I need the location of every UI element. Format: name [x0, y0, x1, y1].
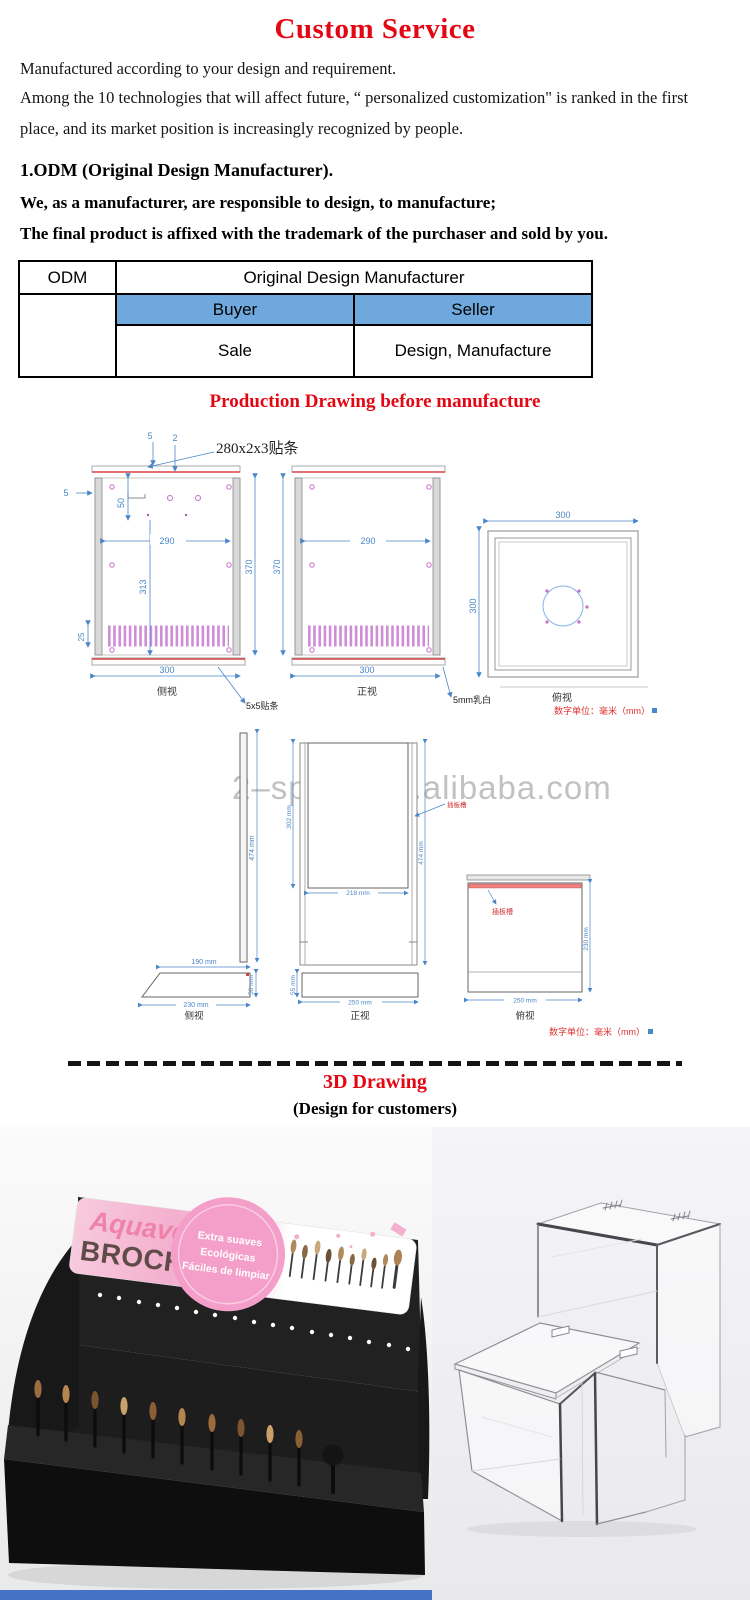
intro-line-1: Manufactured according to your design an…	[20, 59, 396, 79]
dim-474-mid: 474 mm	[418, 841, 425, 864]
dim-300-top-h: 300	[555, 510, 570, 520]
table-cell-buyer: Buyer	[116, 294, 354, 325]
page-title: Custom Service	[0, 13, 750, 46]
side-view-label: 侧视	[157, 685, 177, 698]
slot-note-right: 插板槽	[492, 907, 513, 916]
table-cell-odm: ODM	[19, 261, 116, 294]
note-tape-strip: 280x2x3贴条	[216, 440, 299, 457]
dim-302: 302 mm	[286, 805, 293, 828]
top-view-drawing	[488, 531, 648, 687]
odm-table: ODM Original Design Manufacturer Buyer S…	[18, 260, 593, 378]
unit-note-2: 数字单位：毫米（mm）	[549, 1026, 645, 1037]
table-cell-design-manufacture: Design, Manufacture	[354, 325, 592, 377]
note-acrylic: 5mm乳白	[453, 694, 491, 705]
dim-50: 50	[116, 498, 126, 508]
dim-230-box: 230 mm	[583, 927, 590, 950]
dim-55: 55 mm	[290, 975, 297, 995]
box-shadow	[467, 1521, 697, 1537]
dim-50mm: 50 mm	[248, 975, 255, 995]
side-view-2-label: 侧视	[184, 1010, 204, 1022]
intro-line-2: Among the 10 technologies that will affe…	[20, 88, 688, 108]
dim-5-left: 5	[63, 488, 68, 498]
3d-drawing-heading: 3D Drawing	[0, 1071, 750, 1094]
side-view-drawing	[92, 466, 245, 665]
top-view-label: 俯视	[552, 691, 572, 704]
dim-300-side: 300	[159, 665, 174, 675]
dim-5-top: 5	[147, 431, 152, 441]
bottom-blue-bar	[0, 1590, 432, 1600]
3d-drawing-subheading: (Design for customers)	[0, 1099, 750, 1119]
front-view-2-label: 正视	[350, 1010, 370, 1022]
dim-2-top: 2	[172, 433, 177, 443]
dashed-divider	[68, 1061, 682, 1066]
front-view-drawing	[292, 466, 445, 665]
front-view-2	[300, 743, 418, 997]
odm-heading: 1.ODM (Original Design Manufacturer).	[20, 160, 333, 181]
dim-313: 313	[138, 579, 148, 594]
production-drawing-heading: Production Drawing before manufacture	[0, 391, 750, 413]
dim-290-front: 290	[360, 536, 375, 546]
top-view-2-label: 俯视	[515, 1010, 535, 1022]
front-view-label: 正视	[357, 685, 377, 698]
odm-line-2: The final product is affixed with the tr…	[20, 224, 608, 244]
table-cell-seller: Seller	[354, 294, 592, 325]
dim-190: 190 mm	[191, 959, 216, 966]
brush-display-image: Aquavera BROCHAS Extra suaves Ecológicas…	[0, 1127, 432, 1600]
dim-290-side: 290	[159, 536, 174, 546]
note-5x5-tape: 5x5贴条	[246, 700, 279, 711]
dim-370-front: 370	[272, 559, 282, 574]
odm-line-1: We, as a manufacturer, are responsible t…	[20, 193, 496, 213]
dim-250-box: 250 mm	[513, 998, 536, 1005]
intro-line-3: place, and its market position is increa…	[20, 119, 463, 139]
dim-474-left: 474 mm	[249, 835, 256, 860]
dim-250-front: 250 mm	[348, 1000, 371, 1007]
dim-370-side: 370	[244, 559, 254, 574]
dim-218: 218 mm	[346, 890, 369, 897]
cursor-mark-2	[648, 1029, 653, 1034]
production-drawing-2: 2–space.en.alibaba.com 474 mm 190 mm 230…	[0, 717, 750, 1047]
slot-note-mid: 插板槽	[447, 800, 467, 809]
cursor-mark-1	[652, 708, 657, 713]
top-view-2	[467, 875, 590, 992]
unit-note-1: 数字单位：毫米（mm）	[554, 705, 650, 716]
watermark: 2–space.en.alibaba.com	[232, 769, 612, 806]
dim-25: 25	[77, 632, 86, 641]
production-drawing-1: 5 2 5 50 290 313 370 25 300 280x2x3贴条 侧视…	[0, 425, 750, 717]
dim-300-top-v: 300	[468, 598, 478, 613]
dim-230-base: 230 mm	[183, 1002, 208, 1009]
table-cell-odm-title: Original Design Manufacturer	[116, 261, 592, 294]
table-cell-empty	[19, 294, 116, 377]
acrylic-box-image	[432, 1127, 750, 1600]
dim-300-front: 300	[359, 665, 374, 675]
table-cell-sale: Sale	[116, 325, 354, 377]
